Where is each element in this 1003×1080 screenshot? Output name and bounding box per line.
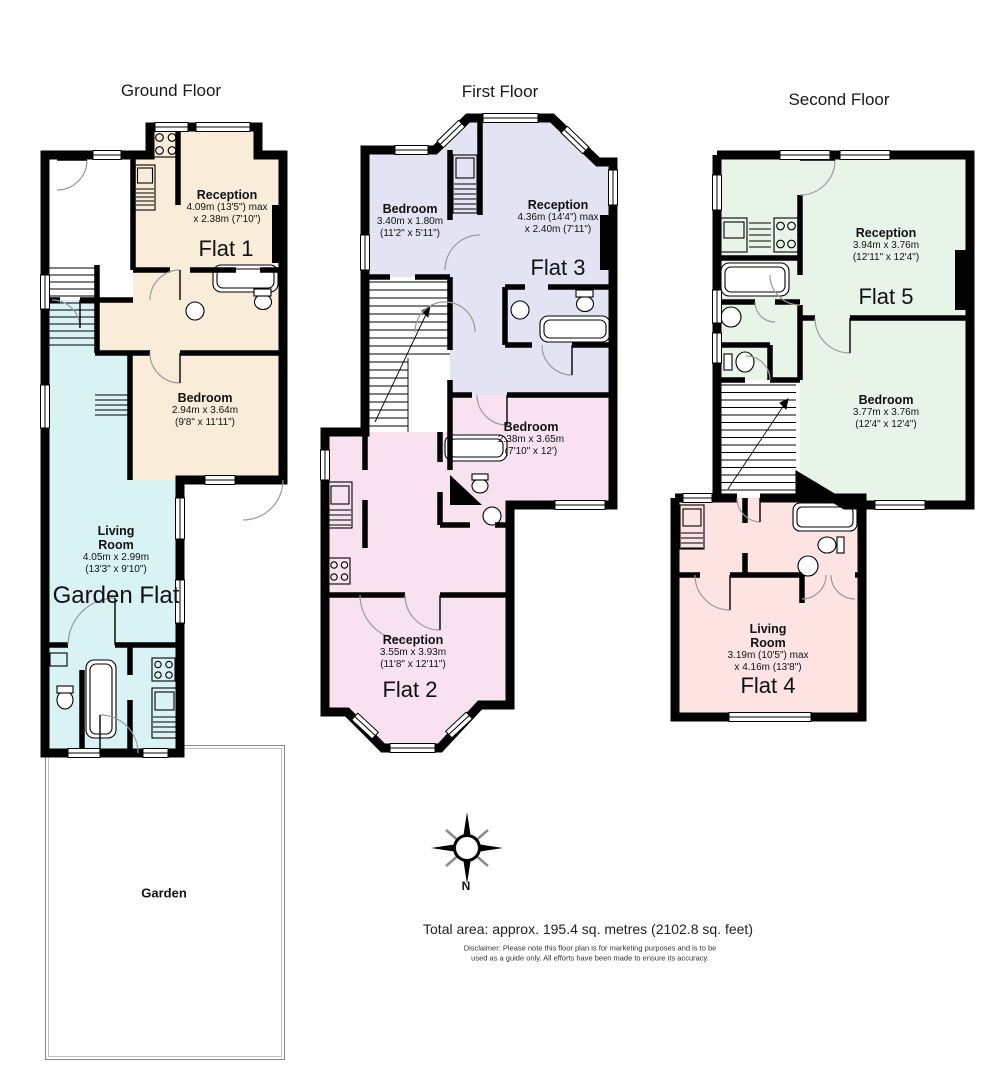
garden-inner-border xyxy=(48,748,282,1057)
room-label-bedroom-flat5: Bedroom 3.77m x 3.76m (12'4" x 12'4") xyxy=(853,393,919,431)
flat5-label: Flat 5 xyxy=(858,284,913,310)
toilet-icon xyxy=(254,289,272,310)
second-floor-title: Second Floor xyxy=(788,90,889,110)
gf-toilet-icon xyxy=(57,686,73,709)
second-stairwell xyxy=(717,380,800,498)
flat2-toilet-icon xyxy=(472,474,488,493)
disclaimer-line1: Disclaimer: Please note this floor plan … xyxy=(464,944,717,953)
room-label-bedroom-ground: Bedroom 2.94m x 3.64m (9'8" x 11'11") xyxy=(172,391,238,429)
room-label-bedroom-flat3: Bedroom 3.40m x 1.80m (11'2" x 5'11") xyxy=(377,202,443,240)
room-label-living-room-garden-flat: Living Room 4.05m x 2.99m (13'3" x 9'10"… xyxy=(83,524,149,576)
basin-icon xyxy=(186,302,204,320)
flat1-label: Flat 1 xyxy=(198,236,253,262)
bath-icon xyxy=(540,316,610,342)
room-label-reception-flat1: Reception 4.09m (13'5") max x 2.38m (7'1… xyxy=(186,188,267,226)
compass-rose-icon xyxy=(420,800,514,894)
flat4-label: Flat 4 xyxy=(740,673,795,699)
first-floor-title: First Floor xyxy=(462,82,539,102)
toilet-icon xyxy=(576,290,594,312)
second-wall-notch xyxy=(955,250,970,310)
disclaimer-line2: used as a guide only. All efforts have b… xyxy=(471,954,709,963)
room-label-reception-flat3: Reception 4.36m (14'4") max x 2.40m (7'1… xyxy=(517,198,598,236)
basin-icon xyxy=(511,301,529,319)
flat2-label: Flat 2 xyxy=(382,677,437,703)
floorplan-page: Ground Floor First Floor Second Floor xyxy=(0,0,1003,1080)
total-area-text: Total area: approx. 195.4 sq. metres (21… xyxy=(423,921,753,937)
room-label-reception-flat5: Reception 3.94m x 3.76m (12'11" x 12'4") xyxy=(853,226,919,264)
garden-flat-label: Garden Flat xyxy=(53,582,180,610)
flat3-label: Flat 3 xyxy=(530,255,585,281)
ground-wall-notch xyxy=(272,205,283,263)
room-label-living-room-flat4: Living Room 3.19m (10'5") max x 4.16m (1… xyxy=(727,622,808,674)
first-wall-notch xyxy=(600,215,613,270)
toilet-icon xyxy=(724,352,754,372)
basin-icon xyxy=(721,307,741,327)
garden-label: Garden xyxy=(141,886,187,901)
bath-icon xyxy=(721,263,789,296)
room-label-reception-flat2: Reception 3.55m x 3.93m (11'8" x 12'11") xyxy=(380,633,446,671)
gf-bath-icon xyxy=(86,660,116,738)
ground-floor-title: Ground Floor xyxy=(121,81,221,101)
garden-area xyxy=(45,745,285,1060)
room-label-bedroom-flat2: Bedroom 2.38m x 3.65m (7'10" x 12') xyxy=(498,420,564,458)
second-floor-drawing xyxy=(670,145,985,725)
flat4-toilet-icon xyxy=(818,537,844,553)
